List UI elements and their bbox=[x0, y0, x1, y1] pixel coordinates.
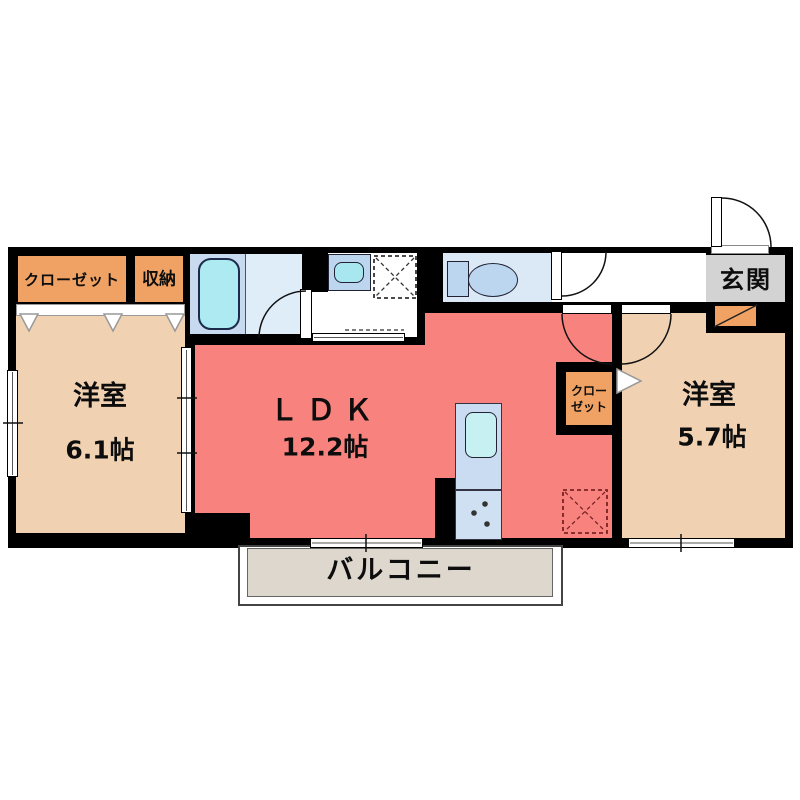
closet-right-label-line2: ゼット bbox=[571, 400, 607, 414]
kitchen-wall-stub bbox=[435, 478, 455, 540]
toilet-tank bbox=[447, 261, 469, 297]
kitchen-stove bbox=[455, 490, 502, 540]
storage-label: 収納 bbox=[142, 271, 176, 290]
floor-plan: クローゼット 収納 洋室 6.1帖 ＬＤＫ 12.2帖 クロー ゼット 洋室 5… bbox=[0, 0, 800, 800]
entrance-label: 玄関 bbox=[720, 267, 772, 293]
entrance-door bbox=[711, 197, 722, 247]
window-bedroom-left bbox=[7, 370, 18, 477]
bedroom-left-size: 6.1帖 bbox=[65, 436, 134, 464]
ldk-corner-wall bbox=[185, 513, 250, 548]
closet-right-label-line1: クロー bbox=[571, 384, 607, 398]
bedroom-left bbox=[16, 316, 185, 533]
toilet-bowl bbox=[468, 263, 518, 297]
sliding-door-washroom bbox=[312, 333, 405, 342]
closet-door-strip bbox=[16, 304, 185, 316]
washbasin-bowl bbox=[334, 262, 364, 283]
bedroom-left-name: 洋室 bbox=[73, 382, 127, 412]
kitchen-sink bbox=[465, 412, 497, 458]
bedroom-right-name: 洋室 bbox=[682, 381, 736, 411]
bath-door bbox=[300, 289, 312, 339]
ldk-area-upper bbox=[425, 313, 612, 362]
shoe-cabinet2 bbox=[714, 305, 757, 327]
hallway bbox=[552, 253, 706, 302]
pipe-space bbox=[306, 253, 328, 292]
ldk-area bbox=[195, 345, 558, 538]
bedroom-right-size: 5.7帖 bbox=[677, 423, 746, 451]
bathtub bbox=[198, 258, 240, 330]
window-bedroom-right bbox=[628, 538, 735, 548]
balcony-label: バルコニー bbox=[326, 556, 475, 586]
ldk-size: 12.2帖 bbox=[282, 433, 369, 461]
bathroom-floor bbox=[245, 254, 302, 334]
ldk-area-right bbox=[558, 435, 612, 538]
bedroom-right-door bbox=[621, 304, 671, 314]
sliding-door-bedroom-left bbox=[181, 347, 192, 513]
window-ldk-balcony bbox=[310, 538, 423, 548]
closet-right-label: クロー ゼット bbox=[571, 383, 607, 415]
closet-left-label: クローゼット bbox=[24, 272, 120, 289]
ldk-door bbox=[562, 304, 612, 314]
toilet-door bbox=[551, 251, 562, 300]
entrance-door-arc bbox=[722, 198, 771, 247]
ldk-name: ＬＤＫ bbox=[269, 395, 380, 427]
